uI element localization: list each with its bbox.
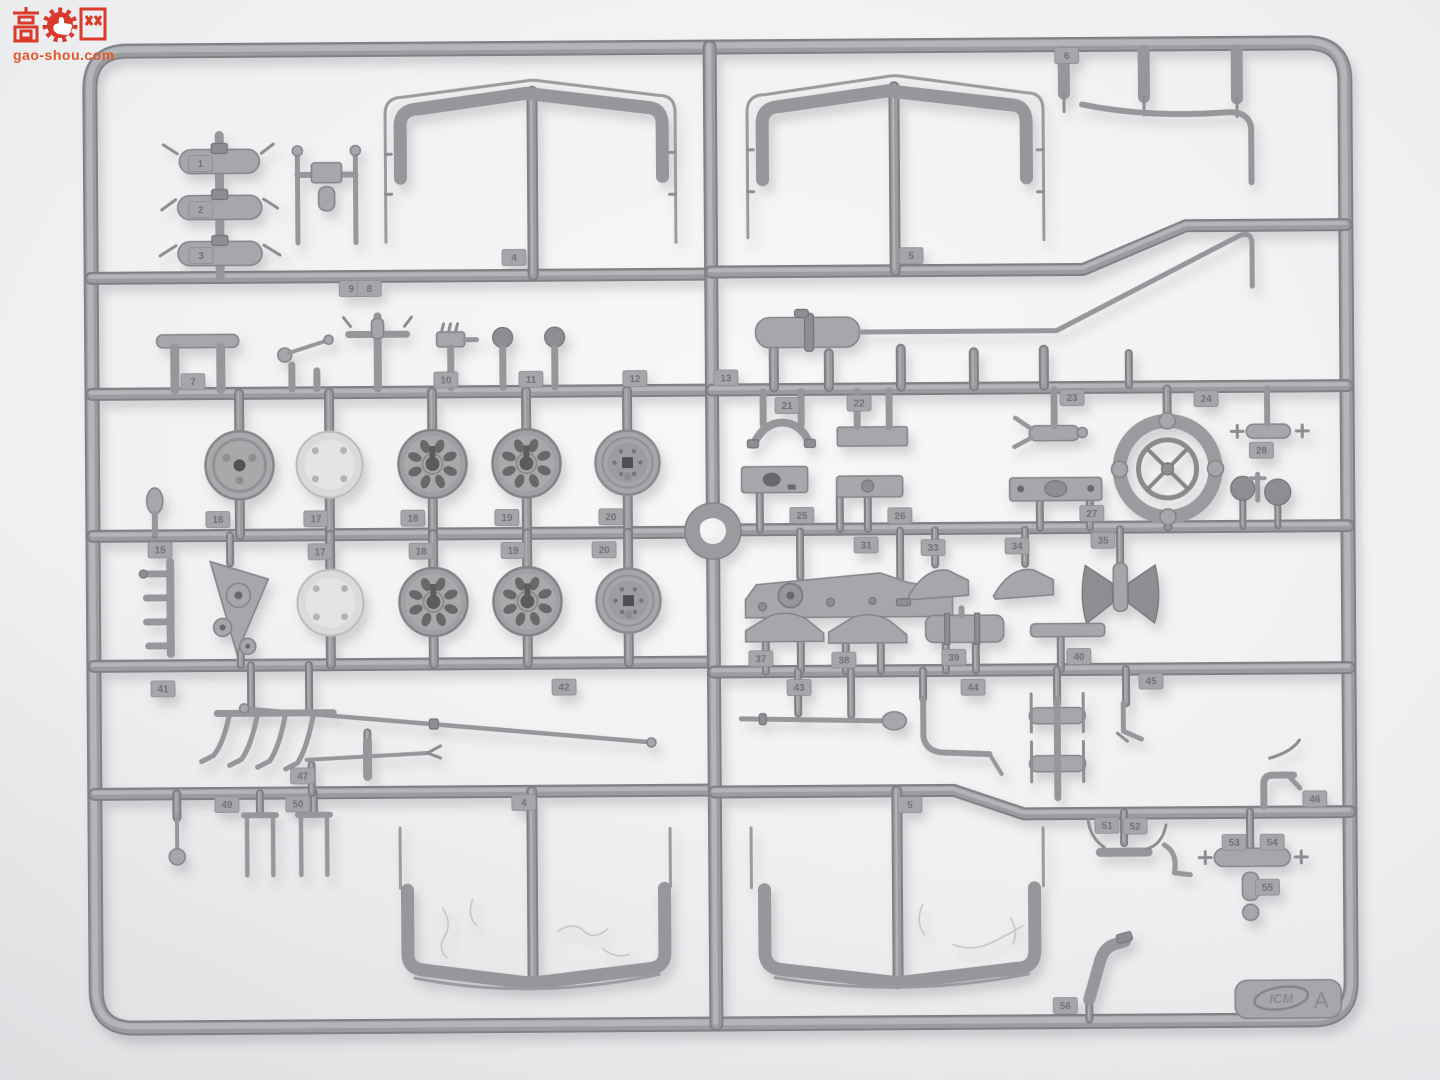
svg-text:40: 40 <box>1073 652 1085 663</box>
svg-text:16: 16 <box>212 515 224 526</box>
svg-text:38: 38 <box>838 656 850 667</box>
part-number-tag: 39 <box>942 649 966 665</box>
icm-logo-plate: ICM A <box>1235 980 1341 1019</box>
part-wheel-spoke <box>398 430 466 498</box>
part-number-tag: 44 <box>961 679 985 695</box>
svg-text:5: 5 <box>907 800 913 811</box>
svg-text:33: 33 <box>927 543 939 554</box>
part-wheel-spoke <box>399 568 467 636</box>
part-wheel-spoke <box>493 567 561 635</box>
part-number-tag: 4 <box>512 794 536 810</box>
part-number-tag: 43 <box>787 679 811 695</box>
watermark-char-gao <box>13 7 39 41</box>
svg-text:25: 25 <box>796 511 808 522</box>
svg-text:51: 51 <box>1101 821 1113 832</box>
part-number-tag: 31 <box>854 537 878 553</box>
part-number-tag: 34 <box>1005 538 1029 554</box>
part-number-tag: 2 <box>189 202 213 218</box>
part-number-tag: 21 <box>775 397 799 413</box>
part-number-tag: 6 <box>1055 47 1079 63</box>
svg-text:4: 4 <box>521 798 527 809</box>
part-number-tag: 3 <box>189 248 213 264</box>
part-wheel-hub <box>596 568 660 632</box>
svg-text:20: 20 <box>605 512 617 523</box>
part-flat-bar-40 <box>1031 623 1105 637</box>
thumb-up-gear-icon <box>45 10 75 40</box>
part-number-tag: 41 <box>151 681 175 697</box>
sprue-letter: A <box>1314 988 1329 1013</box>
part-number-tag: 7 <box>181 374 205 390</box>
part-axle-plate-25 <box>742 466 808 492</box>
part-number-tag: 25 <box>790 507 814 523</box>
part-wheel-pale <box>297 569 363 635</box>
watermark-char-wang <box>81 9 105 39</box>
svg-text:31: 31 <box>860 540 872 551</box>
part-number-tag: 49 <box>215 796 239 812</box>
svg-text:35: 35 <box>1097 536 1109 547</box>
svg-text:49: 49 <box>221 800 233 811</box>
part-number-tag: 15 <box>148 542 172 558</box>
part-wheel-spoke <box>492 429 560 497</box>
svg-text:4: 4 <box>511 253 517 264</box>
svg-text:26: 26 <box>894 511 906 522</box>
svg-text:53: 53 <box>1229 838 1241 849</box>
svg-text:19: 19 <box>501 513 513 524</box>
part-number-tag: 35 <box>1091 532 1115 548</box>
part-number-tag: 54 <box>1260 834 1284 850</box>
svg-text:8: 8 <box>366 284 372 295</box>
svg-text:55: 55 <box>1262 883 1274 894</box>
part-number-tag: 55 <box>1255 879 1279 895</box>
part-number-tag: 51 <box>1095 817 1119 833</box>
svg-text:23: 23 <box>1066 393 1078 404</box>
part-axle-plate-26 <box>837 476 903 497</box>
part-number-tag: 18 <box>409 543 433 559</box>
part-wheel-pale <box>296 431 362 497</box>
icm-logo-text: ICM <box>1269 991 1294 1006</box>
part-number-tag: 33 <box>921 539 945 555</box>
svg-text:18: 18 <box>407 514 419 525</box>
svg-text:15: 15 <box>154 545 166 556</box>
svg-text:7: 7 <box>190 377 196 388</box>
part-number-tag: 19 <box>501 542 525 558</box>
part-number-tag: 24 <box>1194 391 1218 407</box>
part-number-tag: 5 <box>899 248 923 264</box>
part-number-tag: 52 <box>1123 818 1147 834</box>
site-watermark: 高 网 gao-shou.com <box>8 4 138 68</box>
part-number-tag: 20 <box>599 509 623 525</box>
svg-text:10: 10 <box>440 375 452 386</box>
svg-text:37: 37 <box>755 654 767 665</box>
part-number-tag: 4 <box>502 249 526 265</box>
part-wheel-drum <box>205 431 273 499</box>
part-number-tag: 17 <box>308 544 332 560</box>
svg-text:42: 42 <box>558 683 570 694</box>
sprue-photo: ICM A 1234569871011121315161718192017181… <box>0 0 1440 1080</box>
svg-text:5: 5 <box>908 251 914 262</box>
part-number-tag: 8 <box>357 280 381 296</box>
svg-text:28: 28 <box>1256 446 1268 457</box>
svg-text:27: 27 <box>1086 509 1098 520</box>
part-number-tag: 47 <box>291 768 315 784</box>
svg-text:17: 17 <box>315 547 327 558</box>
svg-text:3: 3 <box>198 251 204 262</box>
svg-text:13: 13 <box>720 373 732 384</box>
part-number-tag: 26 <box>888 508 912 524</box>
part-number-tag: 37 <box>749 651 773 667</box>
part-number-tag: 17 <box>304 511 328 527</box>
part-number-tag: 12 <box>623 371 647 387</box>
part-number-tag: 27 <box>1080 505 1104 521</box>
svg-text:19: 19 <box>508 546 520 557</box>
svg-text:20: 20 <box>599 545 611 556</box>
part-number-tag: 23 <box>1060 389 1084 405</box>
svg-text:22: 22 <box>853 398 865 409</box>
part-number-tag: 50 <box>286 796 310 812</box>
svg-text:54: 54 <box>1267 838 1279 849</box>
photo-of-model-kit-sprue: ICM A 1234569871011121315161718192017181… <box>0 0 1440 1080</box>
part-number-tag: 38 <box>832 652 856 668</box>
svg-text:39: 39 <box>948 653 960 664</box>
svg-text:44: 44 <box>967 683 979 694</box>
part-number-tag: 10 <box>434 372 458 388</box>
part-number-tag: 19 <box>495 509 519 525</box>
svg-text:47: 47 <box>297 771 309 782</box>
svg-text:46: 46 <box>1309 794 1321 805</box>
svg-text:45: 45 <box>1145 676 1157 687</box>
svg-text:21: 21 <box>782 401 794 412</box>
watermark-site-text: gao-shou.com <box>13 47 115 63</box>
svg-text:41: 41 <box>157 684 169 695</box>
svg-text:18: 18 <box>416 547 428 558</box>
svg-text:56: 56 <box>1060 1001 1072 1012</box>
part-number-tag: 40 <box>1067 648 1091 664</box>
svg-text:9: 9 <box>348 284 354 295</box>
part-number-tag: 16 <box>206 511 230 527</box>
part-number-tag: 56 <box>1053 998 1077 1014</box>
svg-text:2: 2 <box>198 205 204 216</box>
watermark-graphic: gao-shou.com <box>8 4 138 68</box>
part-number-tag: 18 <box>401 510 425 526</box>
svg-text:50: 50 <box>292 799 304 810</box>
svg-text:34: 34 <box>1011 541 1023 552</box>
part-number-tag: 28 <box>1249 442 1273 458</box>
part-axle-plate-27 <box>1010 477 1102 501</box>
center-ring <box>685 503 741 559</box>
svg-text:17: 17 <box>310 514 322 525</box>
part-number-tag: 22 <box>847 395 871 411</box>
svg-text:24: 24 <box>1200 394 1212 405</box>
part-number-tag: 1 <box>188 156 212 172</box>
part-number-tag: 42 <box>552 679 576 695</box>
svg-text:11: 11 <box>526 375 537 386</box>
part-wheel-hub <box>595 430 659 494</box>
svg-text:52: 52 <box>1129 822 1141 833</box>
svg-text:6: 6 <box>1064 51 1070 62</box>
svg-text:1: 1 <box>198 159 204 170</box>
part-number-tag: 13 <box>714 370 738 386</box>
svg-text:12: 12 <box>629 374 641 385</box>
part-number-tag: 5 <box>898 797 922 813</box>
part-number-tag: 53 <box>1222 834 1246 850</box>
part-number-tag: 45 <box>1139 673 1163 689</box>
part-number-tag: 20 <box>592 542 616 558</box>
svg-text:43: 43 <box>793 683 805 694</box>
part-number-tag: 11 <box>519 371 543 387</box>
part-number-tag: 46 <box>1303 791 1327 807</box>
